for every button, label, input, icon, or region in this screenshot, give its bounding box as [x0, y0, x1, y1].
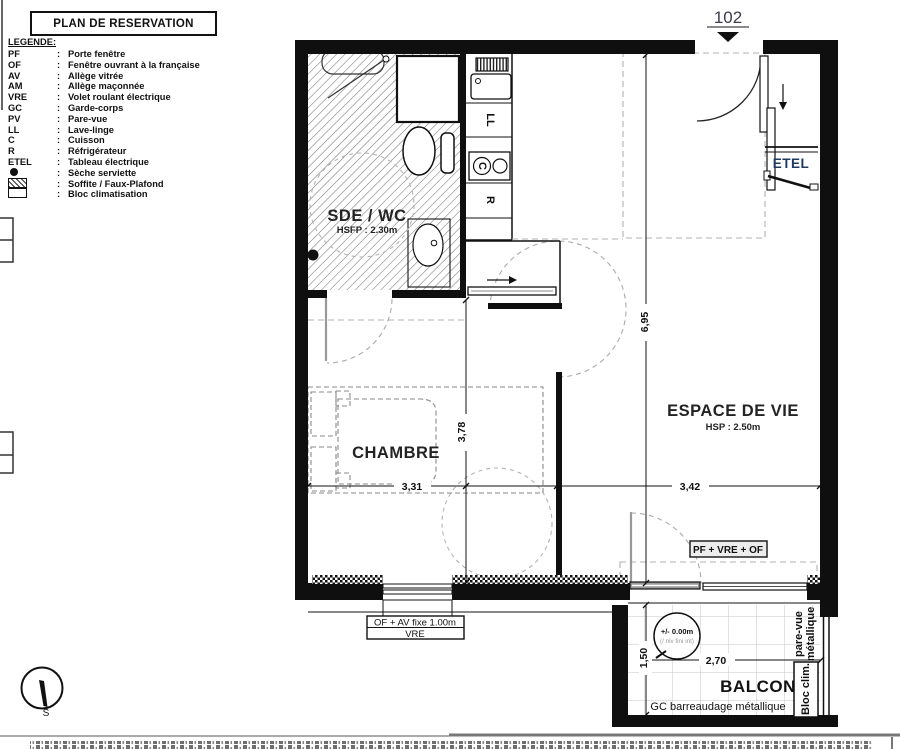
entrance-triangle-icon	[717, 32, 739, 42]
fridge-label: R	[484, 196, 496, 204]
nightstand	[311, 392, 336, 436]
kitchen-sink	[471, 74, 511, 99]
balcony-railing-note: GC barreaudage métallique	[650, 701, 785, 713]
washbasin	[413, 224, 443, 266]
floor-plan-sheet: PLAN DE RESERVATION LEGENDE: PF:Porte fe…	[0, 0, 900, 749]
nightstand	[311, 447, 336, 491]
room-label-sde-wc: SDE / WC	[327, 207, 406, 225]
compass-south-label: S	[43, 708, 50, 719]
apartment-number: 102	[714, 8, 742, 27]
living-window-tag: PF + VRE + OF	[690, 541, 767, 557]
dim-balcony-depth: 1,50	[638, 648, 650, 669]
room-label-balcon: BALCON	[720, 677, 796, 696]
bedroom-window-tag: OF + AV fixe 1.00m VRE	[367, 616, 464, 640]
kitchen	[466, 54, 512, 240]
dim-chambre-width: 3,31	[402, 481, 423, 493]
apartment-number-marker: 102	[707, 8, 749, 42]
slide-arrow-down-icon	[779, 102, 787, 110]
toilet	[403, 127, 435, 175]
level-value: +/- 0.00m	[661, 627, 694, 636]
kitchen-vent-grill	[476, 58, 508, 71]
room-label-chambre: CHAMBRE	[352, 444, 440, 462]
clipped-footer-text	[30, 741, 873, 749]
cooktop	[469, 152, 510, 180]
room-label-espace-de-vie: ESPACE DE VIE	[667, 402, 799, 420]
compass: S	[22, 668, 63, 720]
bedroom-window-sill	[383, 600, 452, 616]
footer-strip	[0, 734, 900, 749]
room-note-sde-wc: HSFP : 2.30m	[337, 225, 398, 236]
living-window-label: PF + VRE + OF	[693, 545, 763, 556]
dim-unit-depth: 6,95	[639, 312, 651, 333]
level-note: (/ niv fini int)	[660, 638, 694, 645]
compass-needle-icon	[39, 680, 48, 707]
pare-vue-label-2: métallique	[805, 607, 817, 661]
shower-enclosure	[397, 56, 459, 122]
seche-serviette-dot-icon	[308, 250, 319, 261]
bedroom-window	[383, 584, 452, 588]
bedroom-furniture	[308, 387, 543, 493]
etel-label: ETEL	[773, 156, 810, 171]
floor-plan-drawing: C LL R	[0, 0, 900, 749]
bedroom-window-label-2: VRE	[405, 629, 425, 640]
level-marker	[654, 613, 700, 659]
bed	[338, 399, 436, 484]
entrance-door-swing	[697, 57, 761, 121]
room-sde-wc	[308, 50, 461, 290]
dim-living-width: 3,42	[680, 481, 701, 493]
slide-arrow-right-icon	[509, 276, 517, 284]
washing-machine-label: LL	[484, 113, 496, 127]
pocket-sliding-door	[466, 241, 560, 303]
bedroom-window-label-1: OF + AV fixe 1.00m	[374, 618, 456, 629]
accessibility-circle	[442, 468, 552, 578]
cooktop-label: C	[476, 162, 488, 170]
bloc-clim-label: Bloc clim.	[800, 663, 812, 715]
pare-vue-label-1: pare-vue	[793, 611, 805, 657]
dim-balcony-width: 2,70	[706, 655, 727, 667]
room-note-espace-de-vie: HSP : 2.50m	[706, 422, 761, 433]
dim-chambre-depth: 3,78	[456, 422, 468, 443]
sheet-frame-fragments	[0, 0, 13, 473]
